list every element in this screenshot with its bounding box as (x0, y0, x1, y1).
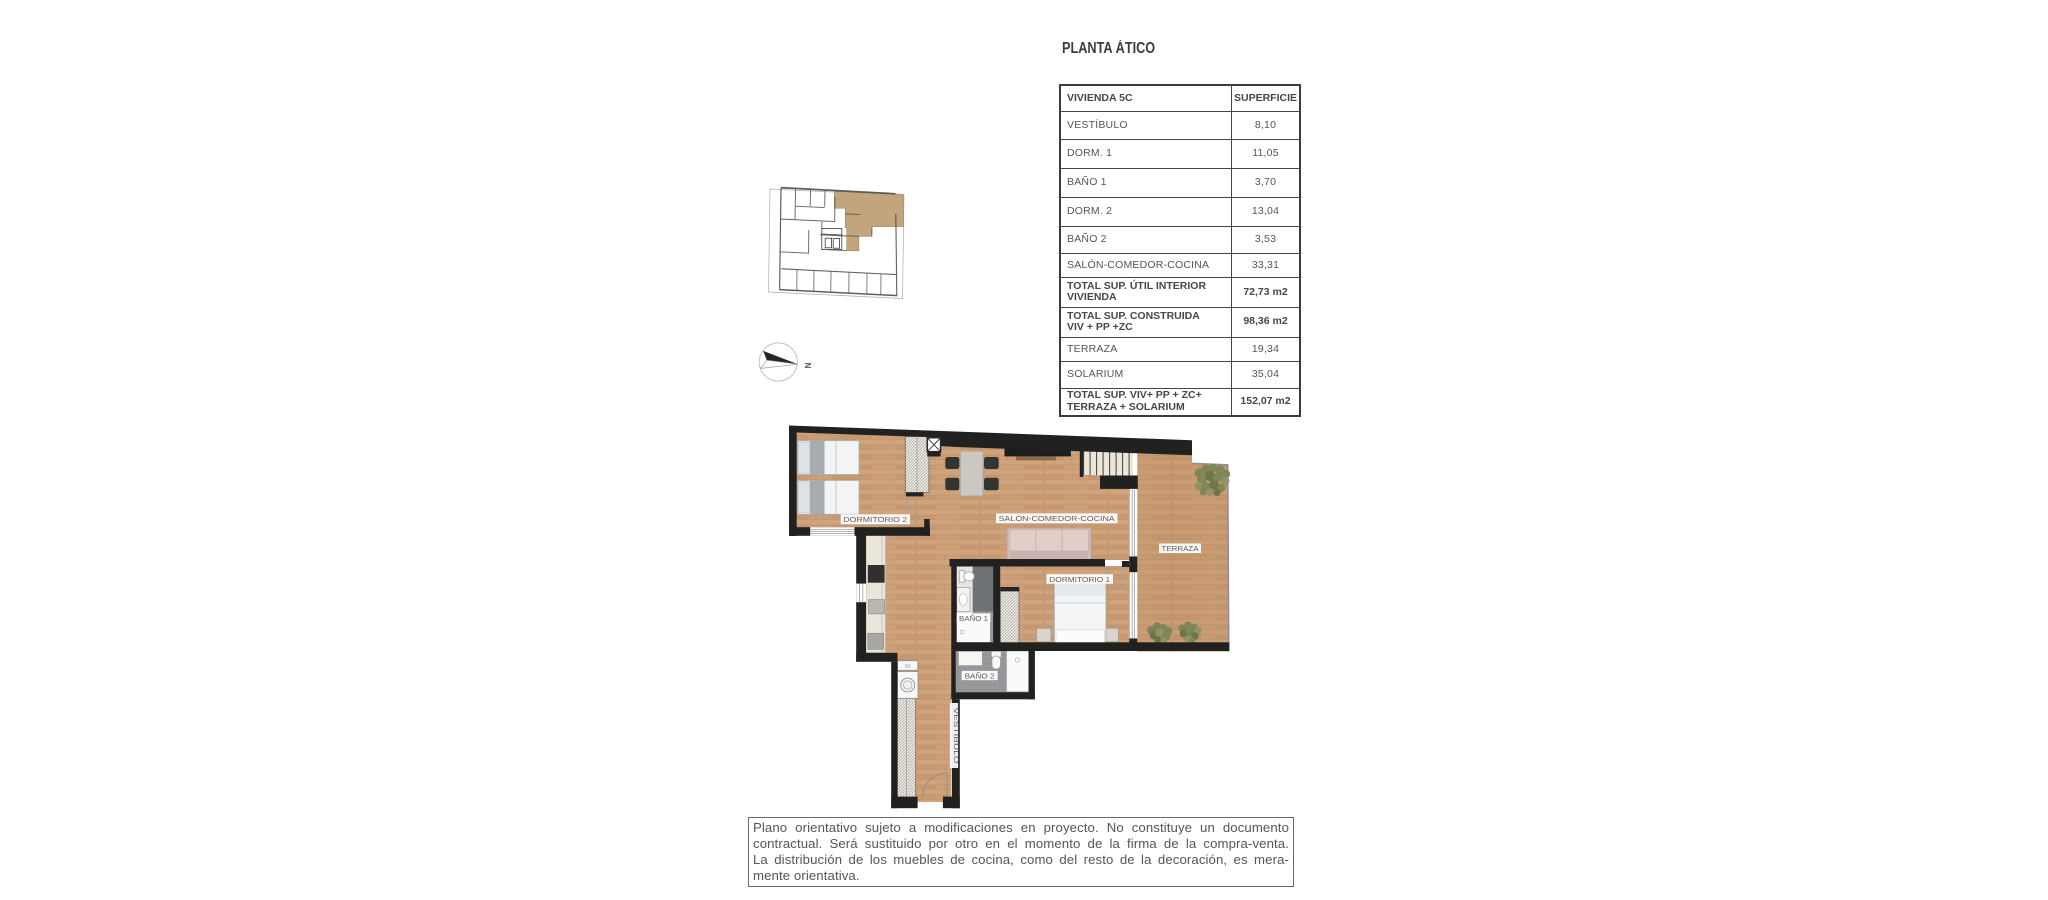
svg-text:VESTIBULO: VESTIBULO (952, 708, 959, 764)
svg-text:SALÓN-COMEDOR-COCINA: SALÓN-COMEDOR-COCINA (999, 514, 1116, 523)
svg-text:BAÑO 2: BAÑO 2 (965, 671, 995, 680)
svg-text:DORMITORIO 2: DORMITORIO 2 (843, 515, 907, 524)
svg-text:SC: SC (905, 663, 911, 668)
svg-text:TERRAZA: TERRAZA (1162, 544, 1200, 553)
svg-text:DORMITORIO 1: DORMITORIO 1 (1049, 575, 1110, 584)
svg-text:N: N (803, 363, 812, 369)
svg-text:BAÑO 1: BAÑO 1 (959, 614, 988, 623)
